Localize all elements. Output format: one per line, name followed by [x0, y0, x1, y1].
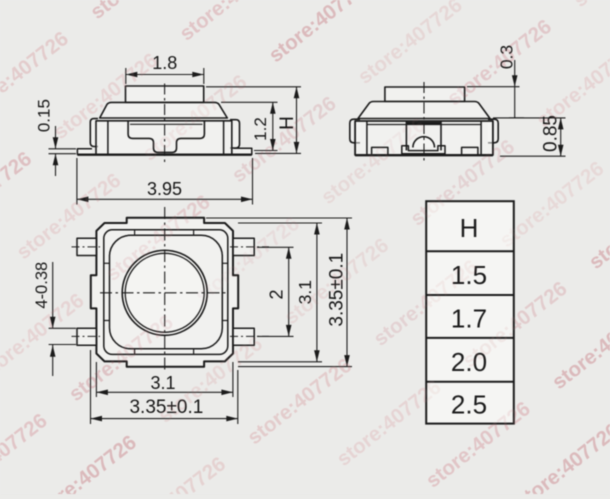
svg-text:H: H — [460, 213, 479, 243]
svg-text:4-0.38: 4-0.38 — [33, 262, 51, 309]
svg-text:1.7: 1.7 — [451, 303, 487, 333]
svg-text:3.95: 3.95 — [147, 179, 182, 199]
svg-text:3.1: 3.1 — [150, 373, 175, 393]
svg-text:2: 2 — [267, 289, 287, 299]
svg-text:2.5: 2.5 — [451, 390, 487, 420]
